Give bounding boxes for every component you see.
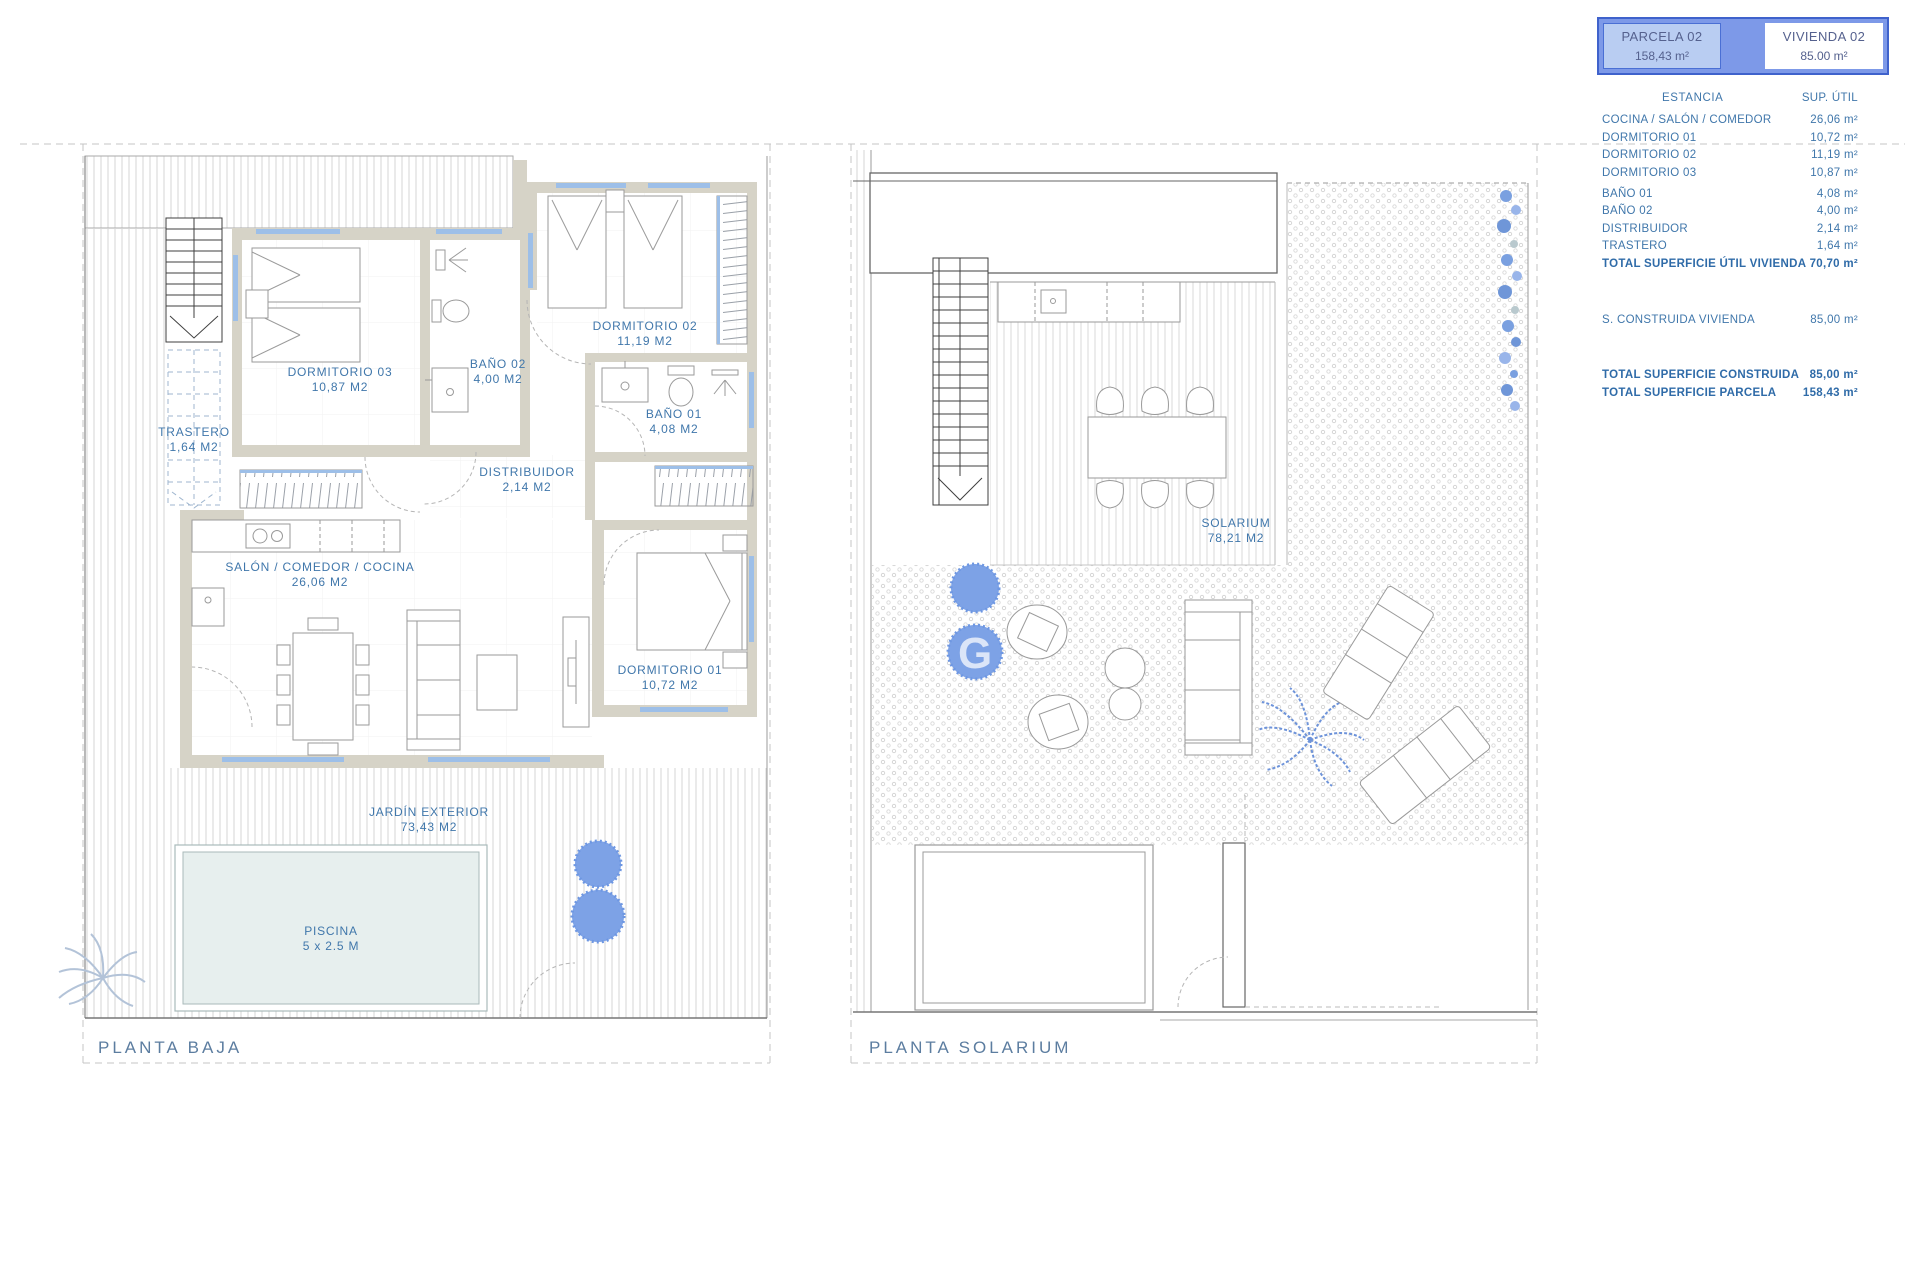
svg-text:73,43 M2: 73,43 M2	[401, 820, 457, 834]
vivienda-area: 85.00 m²	[1800, 47, 1847, 65]
hob-icon	[246, 524, 290, 548]
floorplan-sheet: TRASTERO 1,64 M2 DORMITORIO 03 10,87 M2 …	[0, 0, 1920, 1280]
svg-text:78,21 M2: 78,21 M2	[1208, 531, 1264, 545]
svg-text:BAÑO 01: BAÑO 01	[646, 407, 702, 421]
table-row: TRASTERO1,64 m²	[1602, 240, 1858, 257]
total-construida-row: TOTAL SUPERFICIE CONSTRUIDA85,00 m²	[1602, 369, 1858, 386]
room-label-solarium: SOLARIUM 78,21 M2	[1201, 516, 1270, 545]
svg-text:10,87 M2: 10,87 M2	[312, 380, 368, 394]
pool-below-outline	[915, 845, 1153, 1010]
wardrobe	[240, 470, 362, 508]
double-bed	[637, 535, 747, 668]
surface-table: ESTANCIA SUP. ÚTIL COCINA / SALÓN / COME…	[1602, 92, 1858, 404]
vivienda-card: VIVIENDA 02 85.00 m²	[1765, 23, 1883, 69]
table-row: DORMITORIO 0110,72 m²	[1602, 132, 1858, 149]
svg-text:SALÓN / COMEDOR / COCINA: SALÓN / COMEDOR / COCINA	[225, 559, 414, 574]
porch-strip	[85, 156, 513, 228]
toilet-icon	[432, 300, 469, 322]
svg-text:BAÑO 02: BAÑO 02	[470, 357, 526, 371]
svg-text:11,19 M2: 11,19 M2	[617, 334, 673, 348]
bathroom-2-fixtures	[425, 248, 469, 412]
table-row: COCINA / SALÓN / COMEDOR26,06 m²	[1602, 114, 1858, 131]
outdoor-sofa	[1185, 600, 1252, 755]
sofa	[407, 610, 460, 750]
table-row: DORMITORIO 0211,19 m²	[1602, 149, 1858, 166]
construida-row: S. CONSTRUIDA VIVIENDA85,00 m²	[1602, 314, 1858, 331]
sink-icon	[602, 361, 648, 402]
room-label-piscina: PISCINA 5 x 2.5 M	[303, 924, 360, 953]
plan-solarium-title: PLANTA SOLARIUM	[869, 1038, 1071, 1057]
svg-text:DORMITORIO 03: DORMITORIO 03	[288, 365, 393, 379]
svg-text:DORMITORIO 02: DORMITORIO 02	[593, 319, 698, 333]
shower-icon	[436, 248, 468, 272]
kitchen-sink-icon	[192, 588, 224, 626]
surface-table-header: ESTANCIA SUP. ÚTIL	[1602, 92, 1858, 109]
total-util-row: TOTAL SUPERFICIE ÚTIL VIVIENDA70,70 m²	[1602, 258, 1858, 275]
plan-planta-baja: TRASTERO 1,64 M2 DORMITORIO 03 10,87 M2 …	[59, 156, 767, 1057]
legend-header: PARCELA 02 158,43 m² VIVIENDA 02 85.00 m…	[1597, 17, 1889, 75]
parcela-area: 158,43 m²	[1635, 47, 1689, 65]
side-strip	[853, 150, 871, 1012]
svg-text:1,64 M2: 1,64 M2	[170, 440, 219, 454]
plan-planta-solarium: G	[853, 150, 1537, 1057]
vivienda-title: VIVIENDA 02	[1783, 27, 1865, 47]
staircase	[933, 258, 988, 505]
table-row: DISTRIBUIDOR2,14 m²	[1602, 223, 1858, 240]
table-row: BAÑO 014,08 m²	[1602, 188, 1858, 205]
parcela-title: PARCELA 02	[1621, 27, 1702, 47]
svg-text:PISCINA: PISCINA	[304, 924, 358, 938]
parcela-card: PARCELA 02 158,43 m²	[1603, 23, 1721, 69]
room-label-bano-01: BAÑO 01 4,08 M2	[646, 407, 702, 436]
roof-void	[853, 173, 1277, 273]
tv-unit	[563, 617, 589, 727]
col-estancia: ESTANCIA	[1662, 92, 1723, 104]
svg-text:10,72 M2: 10,72 M2	[642, 678, 698, 692]
table-row: DORMITORIO 0310,87 m²	[1602, 167, 1858, 184]
photo-watermark: G	[958, 629, 992, 678]
svg-text:4,08 M2: 4,08 M2	[650, 422, 699, 436]
bathroom-1-fixtures	[602, 361, 738, 406]
total-parcela-row: TOTAL SUPERFICIE PARCELA158,43 m²	[1602, 387, 1858, 404]
pillar	[1223, 843, 1245, 1007]
gate-arc	[1178, 957, 1228, 1007]
toilet-icon	[668, 366, 694, 406]
outdoor-dining-table	[1088, 387, 1226, 508]
closet	[717, 196, 747, 344]
bar-counter	[998, 282, 1180, 322]
wardrobe	[655, 466, 753, 506]
room-label-trastero: TRASTERO 1,64 M2	[158, 425, 230, 454]
svg-text:TRASTERO: TRASTERO	[158, 425, 230, 439]
bar-sink-icon	[1041, 290, 1066, 313]
svg-text:JARDÍN EXTERIOR: JARDÍN EXTERIOR	[369, 804, 489, 819]
svg-text:SOLARIUM: SOLARIUM	[1201, 516, 1270, 530]
svg-text:DISTRIBUIDOR: DISTRIBUIDOR	[479, 465, 575, 479]
svg-text:2,14 M2: 2,14 M2	[503, 480, 552, 494]
svg-text:5 x 2.5 M: 5 x 2.5 M	[303, 939, 360, 953]
room-label-bano-02: BAÑO 02 4,00 M2	[470, 357, 526, 386]
plan-baja-title: PLANTA BAJA	[98, 1038, 242, 1057]
staircase	[166, 218, 222, 342]
svg-text:4,00 M2: 4,00 M2	[474, 372, 523, 386]
shower-icon	[712, 370, 738, 396]
svg-text:26,06 M2: 26,06 M2	[292, 575, 348, 589]
table-row: BAÑO 024,00 m²	[1602, 205, 1858, 222]
svg-text:DORMITORIO 01: DORMITORIO 01	[618, 663, 723, 677]
sink-icon	[425, 368, 468, 412]
coffee-table	[477, 655, 517, 710]
col-sup-util: SUP. ÚTIL	[1802, 92, 1858, 104]
